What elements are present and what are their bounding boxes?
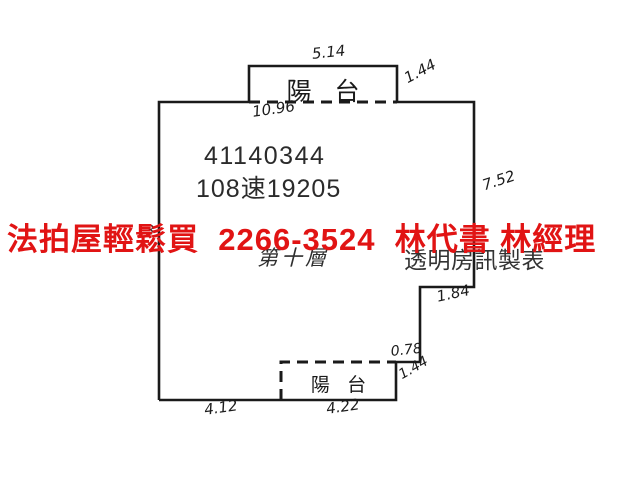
bottom-balcony-label: 陽 台 (281, 370, 396, 397)
floor-plan-page: 41140344 108速19205 陽 台 陽 台 第十層 透明房訊製表 5.… (0, 0, 640, 480)
registration-number: 41140344 (204, 142, 325, 171)
case-number: 108速19205 (196, 169, 341, 205)
dimension-top-balcony-width: 5.14 (311, 42, 346, 63)
advertisement-overlay-text: 法拍屋輕鬆買 2266-3524 林代書 林經理 (7, 214, 640, 259)
